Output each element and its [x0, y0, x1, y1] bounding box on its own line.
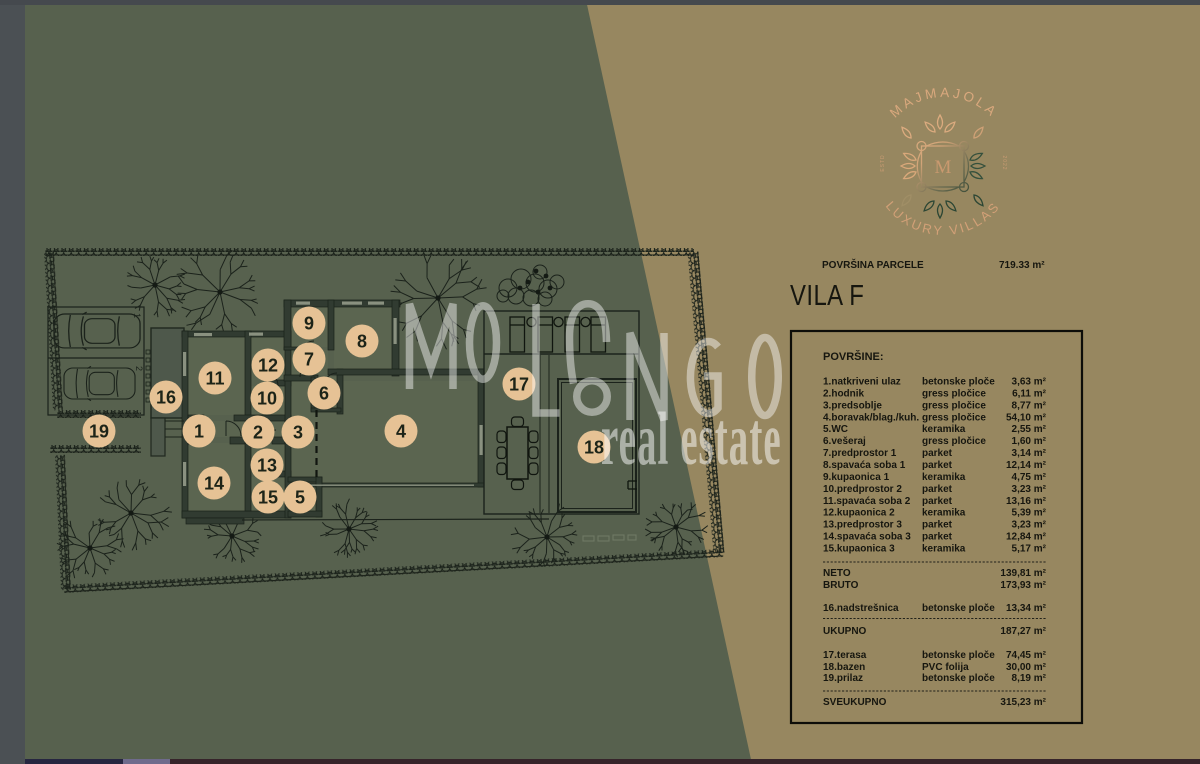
- svg-text:17.terasa: 17.terasa: [823, 650, 867, 661]
- svg-text:gress pločice: gress pločice: [922, 436, 986, 447]
- svg-text:12.kupaonica 2: 12.kupaonica 2: [823, 508, 895, 519]
- svg-text:keramika: keramika: [922, 508, 966, 519]
- svg-text:parket: parket: [922, 484, 953, 495]
- svg-text:139,81 m²: 139,81 m²: [1000, 568, 1046, 579]
- svg-text:betonske ploče: betonske ploče: [922, 650, 995, 661]
- svg-text:SVEUKUPNO: SVEUKUPNO: [823, 697, 887, 708]
- svg-text:5: 5: [295, 488, 305, 508]
- svg-text:BRUTO: BRUTO: [823, 580, 859, 591]
- svg-text:keramika: keramika: [922, 424, 966, 435]
- svg-text:3,23 m²: 3,23 m²: [1012, 520, 1047, 531]
- svg-text:187,27 m²: 187,27 m²: [1000, 626, 1046, 637]
- svg-text:54,10 m²: 54,10 m²: [1006, 412, 1047, 423]
- svg-text:parket: parket: [922, 532, 953, 543]
- svg-text:5.WC: 5.WC: [823, 424, 848, 435]
- svg-text:VILA F: VILA F: [790, 279, 864, 311]
- svg-text:8: 8: [357, 332, 367, 352]
- svg-text:real estate: real estate: [601, 398, 782, 481]
- svg-text:10.predprostor 2: 10.predprostor 2: [823, 484, 902, 495]
- svg-text:3.predsoblje: 3.predsoblje: [823, 400, 882, 411]
- svg-text:1: 1: [132, 313, 142, 318]
- svg-text:POVRŠINA PARCELE: POVRŠINA PARCELE: [822, 258, 924, 271]
- svg-text:3,63 m²: 3,63 m²: [1012, 377, 1047, 388]
- svg-text:19: 19: [89, 422, 109, 442]
- svg-text:betonske ploče: betonske ploče: [922, 673, 995, 684]
- svg-text:6.vešeraj: 6.vešeraj: [823, 436, 866, 447]
- svg-text:5,39 m²: 5,39 m²: [1012, 508, 1047, 519]
- svg-text:2: 2: [134, 366, 144, 371]
- svg-text:30,00 m²: 30,00 m²: [1006, 662, 1047, 673]
- svg-text:1: 1: [194, 422, 204, 442]
- svg-text:4: 4: [396, 422, 406, 442]
- svg-text:keramika: keramika: [922, 544, 966, 555]
- svg-text:13: 13: [257, 456, 277, 476]
- svg-text:ESTD: ESTD: [880, 154, 886, 171]
- svg-text:parket: parket: [922, 496, 953, 507]
- svg-text:18.bazen: 18.bazen: [823, 662, 865, 673]
- svg-text:6,11 m²: 6,11 m²: [1012, 388, 1047, 399]
- svg-text:10: 10: [257, 389, 277, 409]
- svg-text:M: M: [935, 157, 952, 178]
- svg-text:6: 6: [319, 384, 329, 404]
- svg-text:13,16 m²: 13,16 m²: [1006, 496, 1047, 507]
- svg-text:16: 16: [156, 388, 176, 408]
- svg-text:11.spavaća soba 2: 11.spavaća soba 2: [823, 496, 911, 507]
- svg-text:keramika: keramika: [922, 472, 966, 483]
- svg-text:1,60 m²: 1,60 m²: [1012, 436, 1047, 447]
- svg-text:gress pločice: gress pločice: [922, 400, 986, 411]
- svg-text:1.natkriveni ulaz: 1.natkriveni ulaz: [823, 377, 901, 388]
- svg-text:2,55 m²: 2,55 m²: [1012, 424, 1047, 435]
- svg-text:19.prilaz: 19.prilaz: [823, 673, 863, 684]
- svg-text:PVC folija: PVC folija: [922, 662, 969, 673]
- svg-text:betonske ploče: betonske ploče: [922, 377, 995, 388]
- svg-text:14.spavaća soba 3: 14.spavaća soba 3: [823, 532, 911, 543]
- svg-text:8.spavaća soba 1: 8.spavaća soba 1: [823, 460, 906, 471]
- svg-text:3,14 m²: 3,14 m²: [1012, 448, 1047, 459]
- svg-text:173,93 m²: 173,93 m²: [1000, 580, 1046, 591]
- svg-text:17: 17: [509, 375, 529, 395]
- svg-text:13,34 m²: 13,34 m²: [1006, 603, 1047, 614]
- svg-text:9: 9: [304, 314, 314, 334]
- svg-text:5,17 m²: 5,17 m²: [1012, 544, 1047, 555]
- svg-text:parket: parket: [922, 460, 953, 471]
- svg-text:3: 3: [293, 423, 303, 443]
- svg-text:13.predprostor 3: 13.predprostor 3: [823, 520, 902, 531]
- svg-text:74,45 m²: 74,45 m²: [1006, 650, 1047, 661]
- svg-text:8,19 m²: 8,19 m²: [1012, 673, 1047, 684]
- svg-text:12,14 m²: 12,14 m²: [1006, 460, 1047, 471]
- svg-text:15: 15: [258, 488, 278, 508]
- svg-text:16.nadstrešnica: 16.nadstrešnica: [823, 603, 899, 614]
- svg-text:NETO: NETO: [823, 568, 851, 579]
- svg-text:gress pločice: gress pločice: [922, 388, 986, 399]
- svg-text:parket: parket: [922, 448, 953, 459]
- svg-text:7.predprostor 1: 7.predprostor 1: [823, 448, 897, 459]
- svg-text:betonske ploče: betonske ploče: [922, 603, 995, 614]
- svg-text:3,23 m²: 3,23 m²: [1012, 484, 1047, 495]
- svg-text:12,84 m²: 12,84 m²: [1006, 532, 1047, 543]
- svg-text:12: 12: [258, 356, 278, 376]
- svg-text:2022: 2022: [1001, 155, 1007, 170]
- svg-text:8,77 m²: 8,77 m²: [1012, 400, 1047, 411]
- svg-text:11: 11: [205, 369, 224, 389]
- svg-text:315,23 m²: 315,23 m²: [1000, 697, 1046, 708]
- svg-text:gress pločice: gress pločice: [922, 412, 986, 423]
- svg-text:POVRŠINE:: POVRŠINE:: [823, 350, 884, 363]
- svg-text:parket: parket: [922, 520, 953, 531]
- svg-text:2.hodnik: 2.hodnik: [823, 388, 865, 399]
- svg-text:4,75 m²: 4,75 m²: [1012, 472, 1047, 483]
- svg-text:UKUPNO: UKUPNO: [823, 626, 867, 637]
- svg-text:14: 14: [204, 474, 224, 494]
- svg-text:2: 2: [253, 423, 263, 443]
- svg-text:719.33 m²: 719.33 m²: [999, 260, 1045, 271]
- svg-text:4.boravak/blag./kuh.: 4.boravak/blag./kuh.: [823, 412, 919, 423]
- svg-text:9.kupaonica 1: 9.kupaonica 1: [823, 472, 890, 483]
- svg-text:7: 7: [304, 350, 314, 370]
- svg-text:15.kupaonica 3: 15.kupaonica 3: [823, 544, 895, 555]
